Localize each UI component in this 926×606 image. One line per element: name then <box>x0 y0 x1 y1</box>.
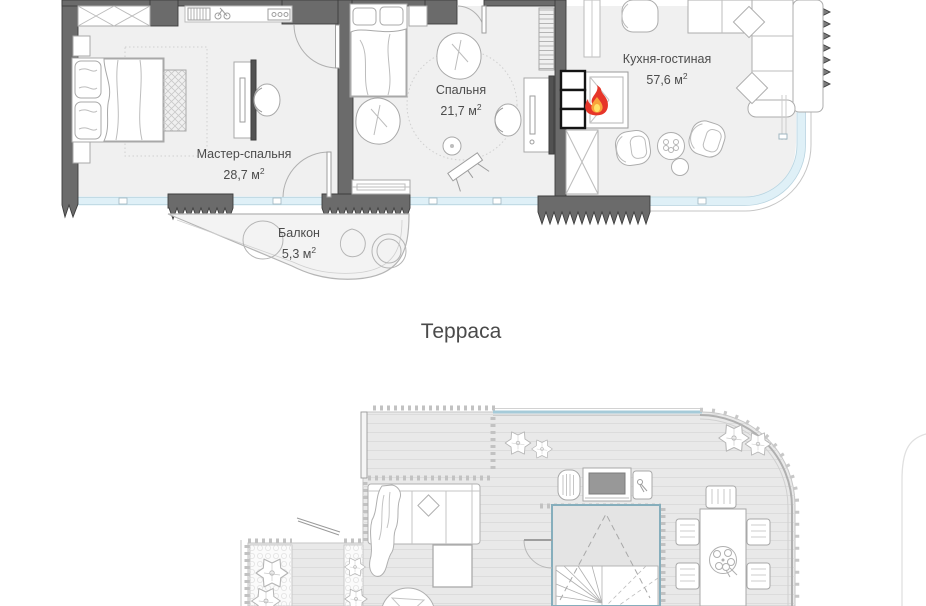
fireplace <box>561 71 628 128</box>
floor-plan-page: Мастер-спальня 28,7 м2 Спальня 21,7 м2 К… <box>0 0 926 606</box>
room-area: 5,3 м2 <box>278 242 320 263</box>
bean-bag-chair <box>356 98 400 144</box>
shelf <box>584 0 600 57</box>
nightstand <box>409 6 427 26</box>
apartment-plan <box>62 0 830 279</box>
radiator-bench <box>352 180 410 194</box>
window-pier-3 <box>538 196 650 224</box>
grill <box>583 468 631 501</box>
ladder-shelf <box>539 8 554 70</box>
side-burner <box>558 470 580 500</box>
grill-side-table <box>633 471 652 499</box>
outdoor-table <box>433 545 472 587</box>
room-name: Мастер-спальня <box>197 146 292 163</box>
armchair <box>622 0 658 32</box>
building-outline <box>902 434 926 606</box>
room-label-kitchen-living: Кухня-гостиная 57,6 м2 <box>623 51 711 89</box>
room-area: 21,7 м2 <box>436 99 486 120</box>
room-name: Кухня-гостиная <box>623 51 711 68</box>
room-area: 57,6 м2 <box>623 68 711 89</box>
room-label-master-bedroom: Мастер-спальня 28,7 м2 <box>197 146 292 184</box>
terrace-plan <box>241 408 926 606</box>
dining-table <box>700 509 746 606</box>
nightstand <box>73 36 90 56</box>
dining-chair <box>676 519 699 545</box>
wardrobe-x-icon <box>78 6 150 26</box>
terrace-step-wall <box>361 412 367 478</box>
armchair <box>614 129 652 167</box>
room-label-bedroom: Спальня 21,7 м2 <box>436 82 486 120</box>
dining-chair <box>747 519 770 545</box>
bean-bag-chair <box>437 33 481 79</box>
gate-leaf <box>297 518 340 535</box>
desk <box>234 60 256 140</box>
desk-chair <box>254 84 280 116</box>
dining-chair <box>747 563 770 589</box>
room-name: Спальня <box>436 82 486 99</box>
master-bed <box>72 58 164 142</box>
dining-chair <box>706 486 736 508</box>
terrace-section-title: Терраса <box>421 319 502 345</box>
bedroom-bed <box>350 4 407 97</box>
desk <box>524 76 554 154</box>
bed-bench <box>163 70 186 131</box>
bbq-station <box>558 468 652 501</box>
stool <box>443 137 461 155</box>
dresser-shelf <box>185 6 292 22</box>
fireplace-flue-boxes <box>561 71 585 128</box>
desk-chair <box>495 104 521 136</box>
room-area: 28,7 м2 <box>197 163 292 184</box>
nightstand <box>73 142 90 163</box>
pouf <box>672 159 689 176</box>
tv-unit-x-icon <box>566 130 598 194</box>
room-label-balcony: Балкон 5,3 м2 <box>278 225 320 263</box>
room-name: Балкон <box>278 225 320 242</box>
coffee-table <box>658 133 685 160</box>
dining-chair <box>676 563 699 589</box>
